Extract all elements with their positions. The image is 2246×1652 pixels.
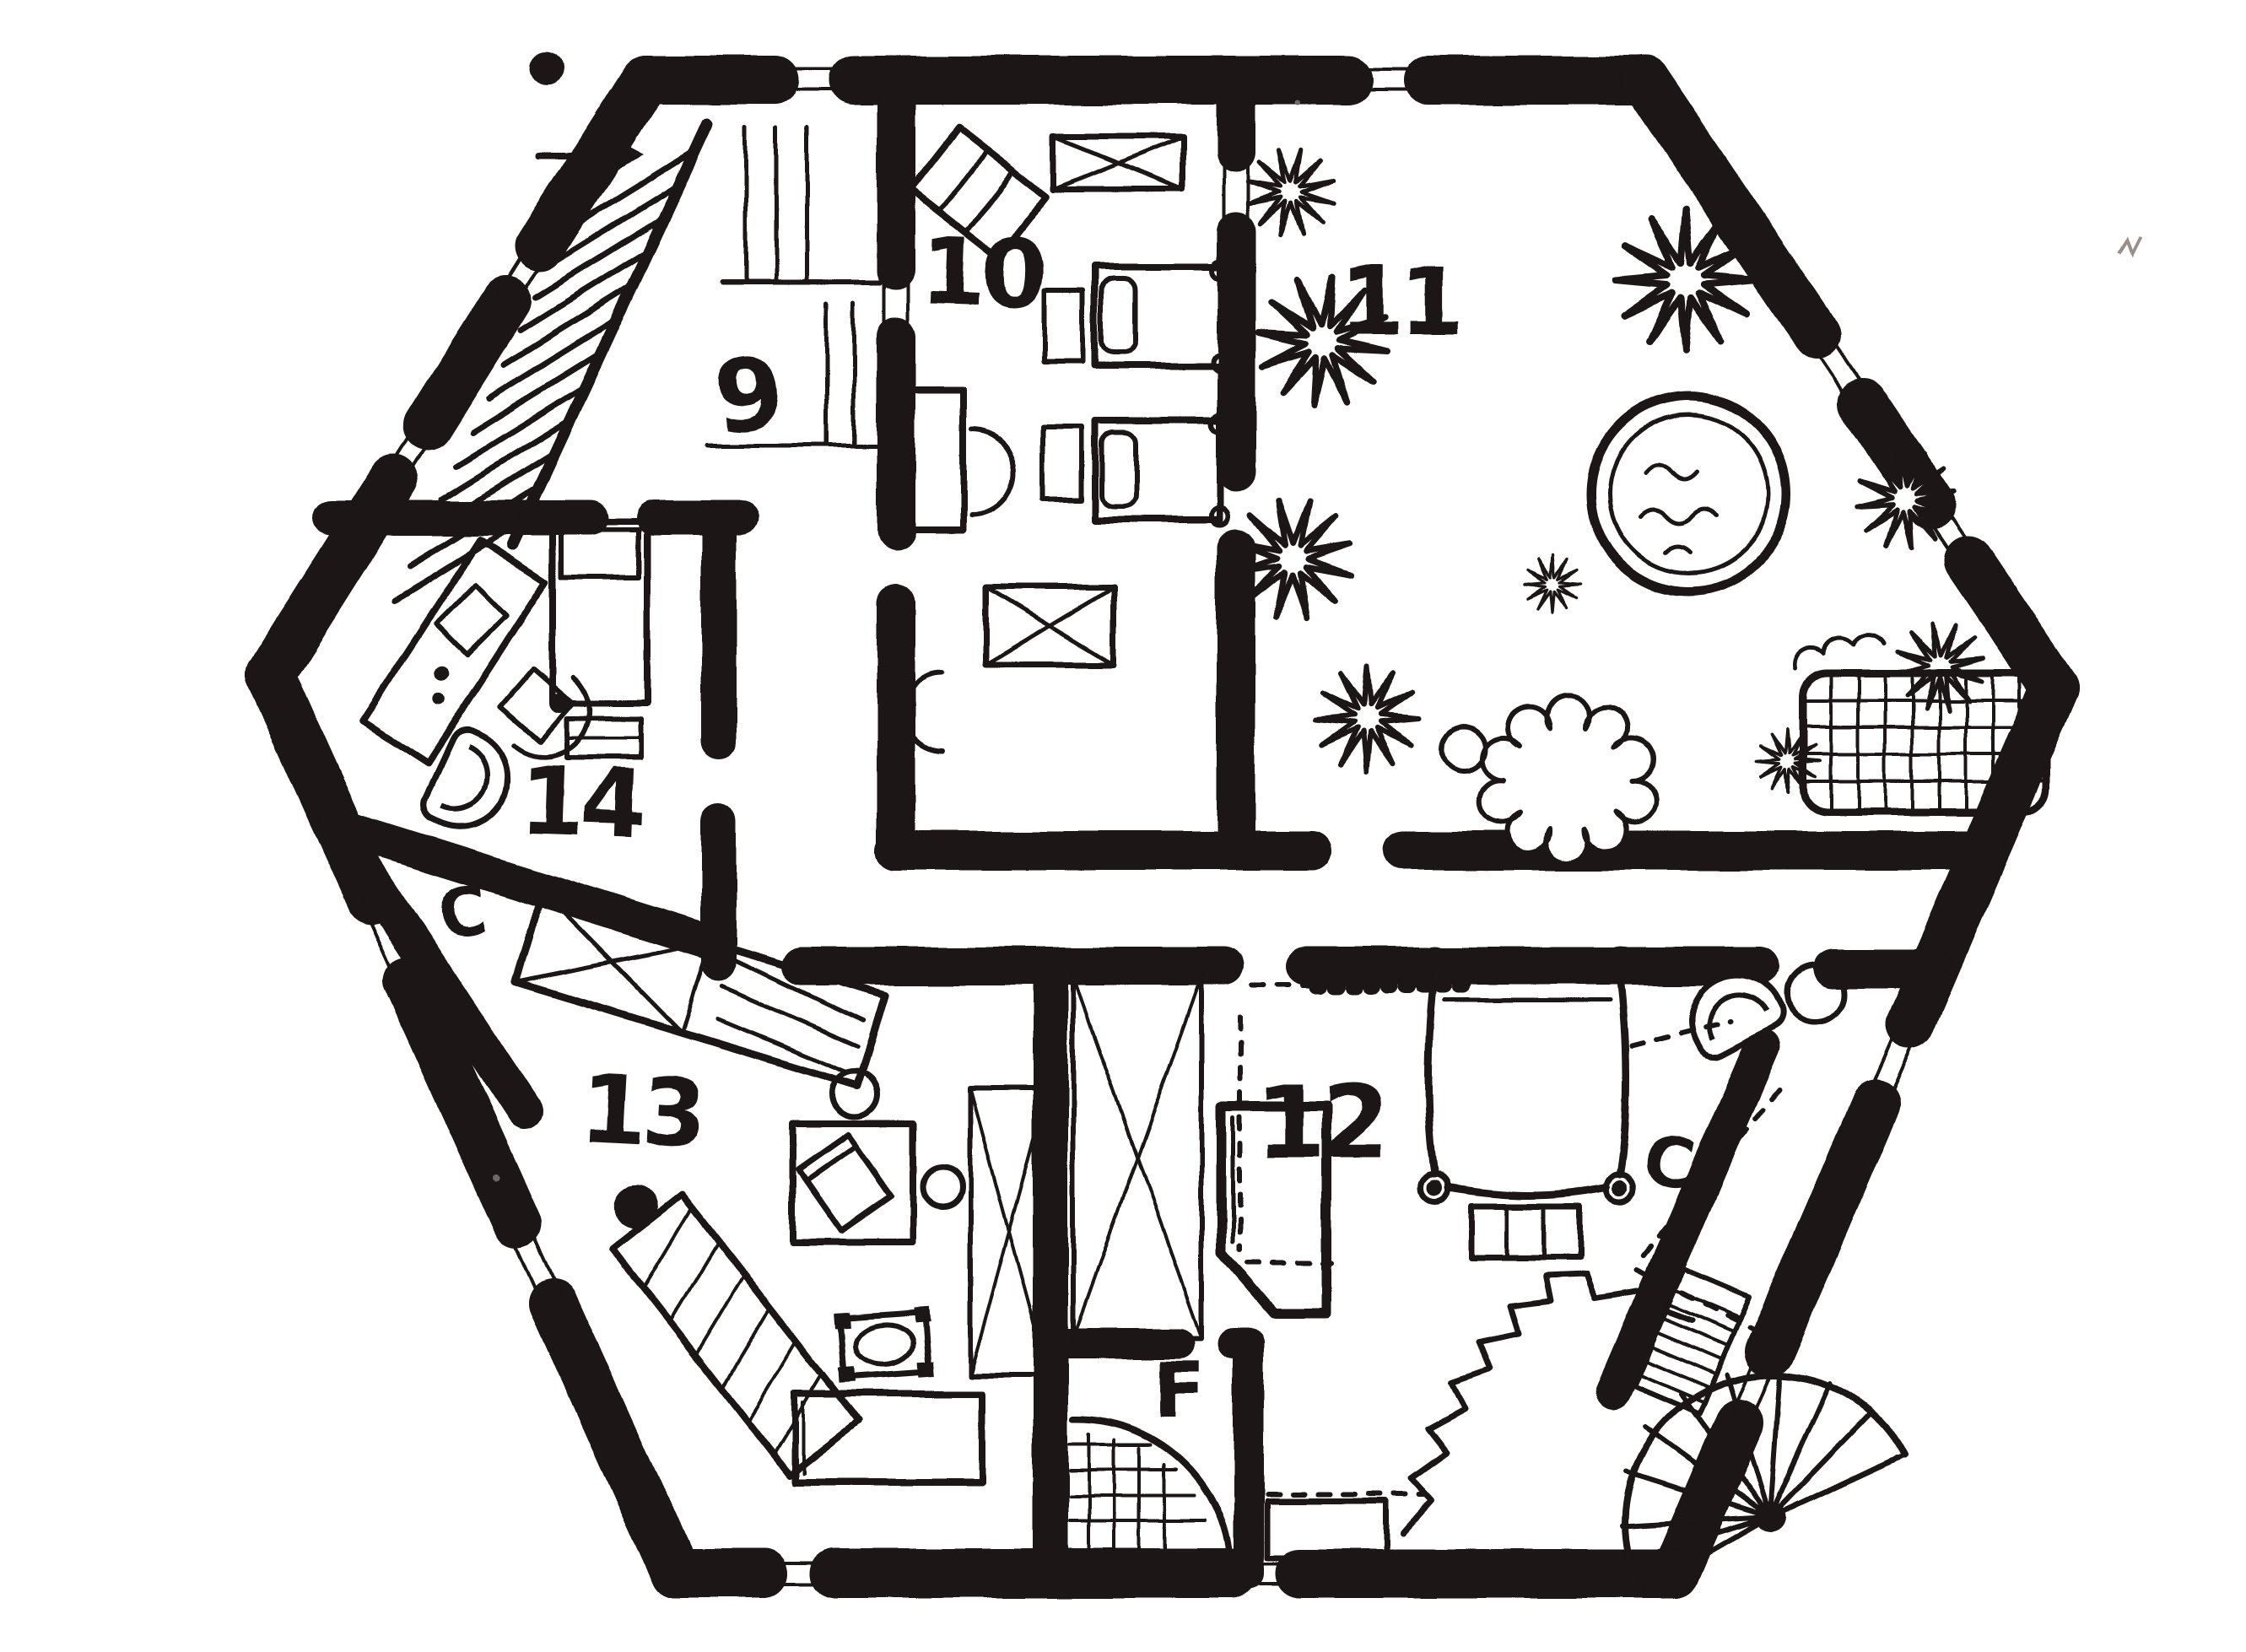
desk-icon xyxy=(910,390,964,530)
bathroom-f: F xyxy=(1070,1346,1230,1563)
room-12-bedroom: 12 C xyxy=(1222,948,1844,1558)
stool-icon xyxy=(832,1072,877,1117)
low-table-icon xyxy=(795,1394,982,1482)
tile-grid-icon xyxy=(1070,1434,1205,1561)
chair-icon xyxy=(972,430,1014,515)
ink-speck xyxy=(1295,100,1300,105)
bed-icon xyxy=(549,521,647,713)
plant-icon xyxy=(1295,647,1438,790)
bed-icon xyxy=(1095,262,1228,371)
plant-icon xyxy=(1757,730,1820,792)
armchair-icon xyxy=(418,726,523,842)
table-and-chair-icon xyxy=(793,1072,962,1242)
plant-icon xyxy=(1524,555,1581,613)
room-label-9: 9 xyxy=(710,334,784,456)
room-10-bedroom: 10 xyxy=(904,127,1228,751)
room-label-14: 14 xyxy=(518,747,644,861)
newel-icon xyxy=(1755,1502,1785,1532)
round-pool-icon xyxy=(1591,396,1787,591)
stool-icon xyxy=(923,1168,962,1207)
room-11-winter-garden: 11 xyxy=(1220,138,2046,861)
bathroom-walls xyxy=(1050,1343,1249,1574)
hedge-icon xyxy=(1795,634,1885,668)
ink-speck xyxy=(493,1174,499,1181)
room-label-11: 11 xyxy=(1338,247,1460,357)
shaft-x-icon xyxy=(1073,977,1201,1338)
margin-scribble xyxy=(2119,236,2141,253)
desk-icon xyxy=(363,540,546,764)
nightstand-icon xyxy=(1045,290,1083,363)
room-label-10: 10 xyxy=(919,217,1045,331)
wardrobe-x-icon xyxy=(1053,137,1183,189)
bed-icon xyxy=(1095,415,1228,525)
corner-knob xyxy=(530,51,564,84)
bench-icon xyxy=(1471,1207,1579,1257)
water-ripples-icon xyxy=(1641,465,1715,553)
bath-label-f: F xyxy=(1153,1346,1207,1436)
closet-label-c: C xyxy=(434,872,491,955)
chest-x-icon xyxy=(985,587,1114,665)
room-label-12: 12 xyxy=(1256,1064,1385,1180)
shower-curve-icon xyxy=(1073,1419,1230,1563)
nightstand-icon xyxy=(1043,427,1082,499)
floor-plan-canvas: 9 xyxy=(0,0,2246,1652)
stone-icon xyxy=(1442,727,1486,771)
ottoman-icon xyxy=(834,1306,934,1384)
room-label-13: 13 xyxy=(578,1054,705,1169)
floor-plan-drawing: 9 xyxy=(0,0,2246,1652)
